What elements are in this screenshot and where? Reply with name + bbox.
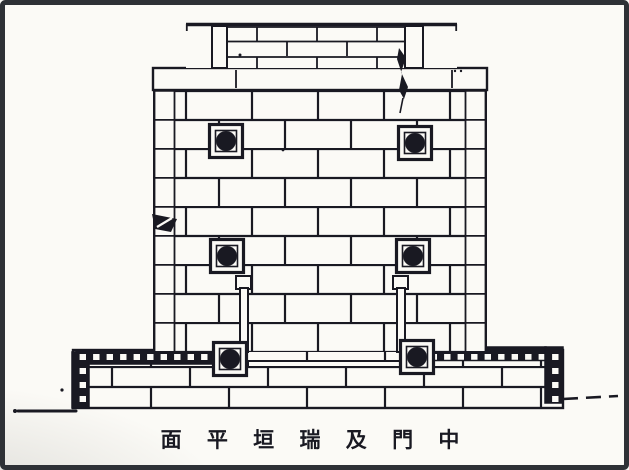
- pilaster-right: [405, 26, 423, 68]
- post-marker: [214, 343, 247, 376]
- plan-drawing: [0, 0, 629, 470]
- top-brickwork: [227, 26, 405, 68]
- post-marker: [401, 341, 434, 374]
- edge-column-right: [466, 90, 487, 352]
- post-marker: [399, 127, 432, 160]
- checker-end-left: [72, 352, 89, 408]
- post-marker: [211, 240, 244, 273]
- base-platform: [72, 347, 563, 408]
- figure-caption: 面 平 垣 瑞 及 門 中: [0, 424, 629, 454]
- main-wall: [153, 88, 487, 352]
- cornice-band: [153, 68, 487, 90]
- scanned-figure-page: 面 平 垣 瑞 及 門 中: [0, 0, 629, 470]
- pilaster-left: [212, 26, 227, 68]
- post-marker: [210, 125, 243, 158]
- wall-brickwork: [153, 88, 487, 352]
- threshold-rail: [248, 361, 403, 367]
- post-marker: [397, 240, 430, 273]
- checker-band-left: [76, 350, 215, 364]
- ground-dot-left: [13, 409, 17, 413]
- checker-end-right: [545, 347, 563, 403]
- top-block: [186, 24, 457, 68]
